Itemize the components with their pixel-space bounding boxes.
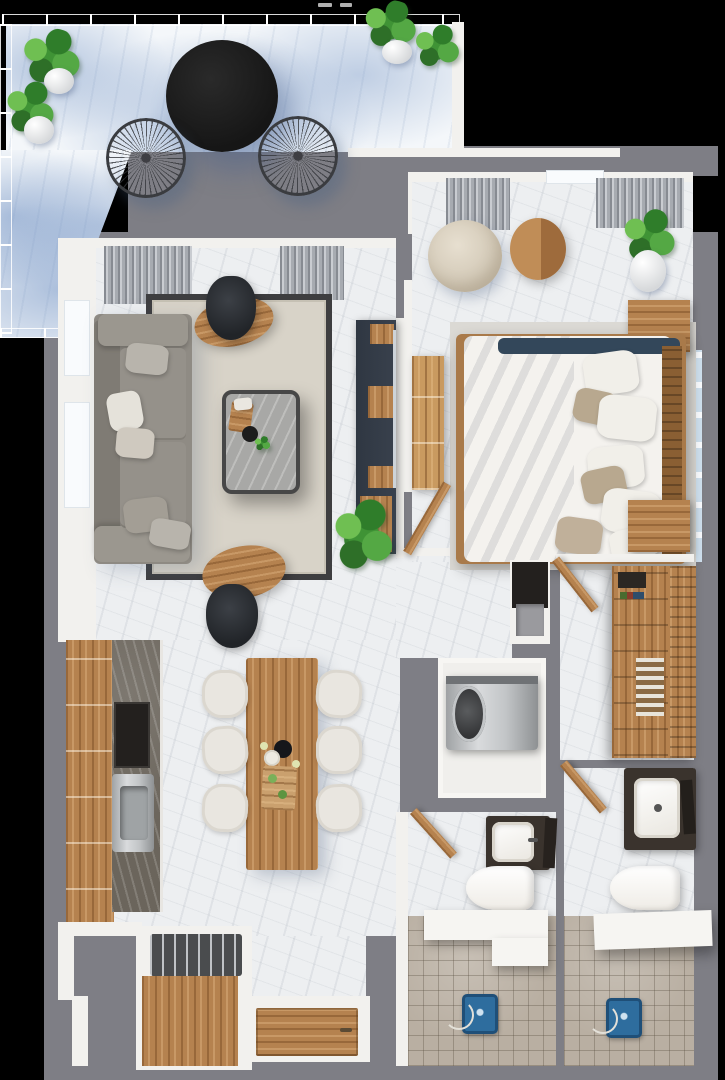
floor-plan-render	[0, 0, 725, 1080]
room-entry	[0, 0, 725, 1080]
entry-door	[256, 1008, 358, 1056]
entry-door-handle	[340, 1028, 352, 1032]
